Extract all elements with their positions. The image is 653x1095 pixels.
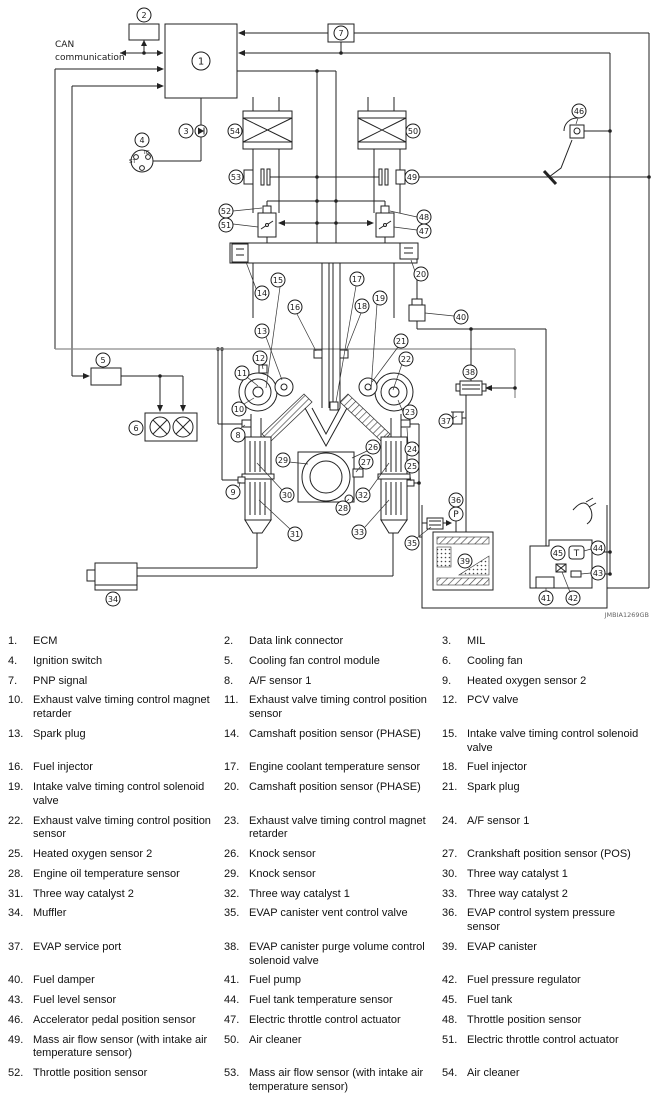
callout-47: 47	[417, 224, 431, 238]
legend-item-number: 3.	[442, 635, 467, 649]
legend-item-number: 2.	[224, 635, 249, 649]
svg-text:37: 37	[441, 417, 451, 426]
can-communication-label: CAN	[55, 40, 74, 50]
legend-item: 51. Electric throttle control actuator	[442, 1034, 649, 1062]
legend-item: 10. Exhaust valve timing control magnet …	[8, 694, 222, 722]
svg-text:36: 36	[451, 496, 461, 505]
svg-text:1: 1	[198, 57, 204, 68]
legend-item: 24. A/F sensor 1	[442, 815, 649, 843]
legend-item-number: 38.	[224, 941, 249, 955]
callout-23: 23	[403, 405, 417, 419]
heated-oxygen-sensor-right-icon	[407, 480, 414, 486]
svg-text:19: 19	[375, 294, 385, 303]
legend-item: 20. Camshaft position sensor (PHASE)	[224, 781, 440, 809]
legend-item-number: 27.	[442, 848, 467, 862]
callout-10: 10	[232, 402, 246, 416]
legend-item: 45. Fuel tank	[442, 994, 649, 1008]
legend-item-number: 14.	[224, 728, 249, 742]
legend-item: 14. Camshaft position sensor (PHASE)	[224, 728, 440, 756]
evap-purge-solenoid-icon	[456, 381, 486, 395]
svg-text:22: 22	[401, 355, 411, 364]
callout-12: 12	[253, 351, 267, 365]
fuel-pump-icon	[536, 577, 554, 588]
legend-item-number: 33.	[442, 888, 467, 902]
legend-item-label: Spark plug	[33, 728, 222, 742]
legend-item-label: Spark plug	[467, 781, 649, 795]
af-sensor-1-right-icon	[401, 420, 410, 427]
callout-32: 32	[356, 488, 370, 502]
legend-item-number: 1.	[8, 635, 33, 649]
legend-item: 4. Ignition switch	[8, 655, 222, 669]
callout-21: 21	[394, 334, 408, 348]
svg-text:26: 26	[368, 443, 378, 452]
svg-text:16: 16	[290, 303, 300, 312]
callout-37: 37	[439, 414, 453, 428]
svg-text:51: 51	[221, 221, 231, 230]
diagram-svg: IG ST	[0, 0, 653, 625]
fuel-damper-icon	[409, 299, 425, 321]
legend-item-number: 54.	[442, 1067, 467, 1081]
callout-16: 16	[288, 300, 302, 314]
legend-item: 41. Fuel pump	[224, 974, 440, 988]
svg-text:24: 24	[407, 445, 417, 454]
data-link-connector-box	[129, 24, 159, 40]
legend-item-number: 50.	[224, 1034, 249, 1048]
svg-text:18: 18	[357, 302, 367, 311]
svg-text:11: 11	[237, 369, 247, 378]
legend-item: 27. Crankshaft position sensor (POS)	[442, 848, 649, 862]
legend-item-number: 21.	[442, 781, 467, 795]
legend-item-label: PNP signal	[33, 675, 222, 689]
legend-item-number: 9.	[442, 675, 467, 689]
callout-17: 17	[350, 272, 364, 286]
svg-text:35: 35	[407, 539, 417, 548]
callout-54: 54	[228, 124, 242, 138]
legend-item: 12. PCV valve	[442, 694, 649, 722]
legend-item-label: Throttle position sensor	[33, 1067, 222, 1081]
legend-item-label: Cooling fan control module	[249, 655, 440, 669]
svg-text:53: 53	[231, 173, 241, 182]
legend-item-label: EVAP canister purge volume control solen…	[249, 941, 440, 969]
callout-44: 44	[591, 541, 605, 555]
svg-text:47: 47	[419, 227, 429, 236]
legend-item-label: Fuel tank temperature sensor	[249, 994, 440, 1008]
legend-item-label: ECM	[33, 635, 222, 649]
callout-2: 2	[137, 8, 151, 22]
legend-item-number: 24.	[442, 815, 467, 829]
callout-30: 30	[280, 488, 294, 502]
callout-40: 40	[454, 310, 468, 324]
legend-item-label: Exhaust valve timing control magnet reta…	[249, 815, 440, 843]
legend-item: 33. Three way catalyst 2	[442, 888, 649, 902]
legend-item-number: 12.	[442, 694, 467, 708]
legend-item-label: Three way catalyst 1	[467, 868, 649, 882]
legend-item-label: EVAP control system pressure sensor	[467, 907, 649, 935]
evap-vent-control-valve-icon	[427, 518, 443, 529]
legend-item-number: 46.	[8, 1014, 33, 1028]
legend-item-label: Exhaust valve timing control magnet reta…	[33, 694, 222, 722]
callout-14: 14	[255, 286, 269, 300]
legend-item: 48. Throttle position sensor	[442, 1014, 649, 1028]
legend-item-label: Intake valve timing control solenoid val…	[33, 781, 222, 809]
legend-item: 43. Fuel level sensor	[8, 994, 222, 1008]
legend-item-number: 40.	[8, 974, 33, 988]
callout-24: 24	[405, 442, 419, 456]
callout-3: 3	[179, 124, 193, 138]
svg-text:8: 8	[235, 431, 240, 440]
svg-text:43: 43	[593, 569, 603, 578]
legend-item-label: Heated oxygen sensor 2	[33, 848, 222, 862]
legend-item: 11. Exhaust valve timing control positio…	[224, 694, 440, 722]
svg-text:40: 40	[456, 313, 466, 322]
legend-item: 37. EVAP service port	[8, 941, 222, 969]
legend-item-label: Intake valve timing control solenoid val…	[467, 728, 649, 756]
svg-text:21: 21	[396, 337, 406, 346]
legend-item-label: Fuel injector	[467, 761, 649, 775]
legend-item-label: Electric throttle control actuator	[249, 1014, 440, 1028]
muffler-icon	[87, 563, 137, 590]
coolant-temp-sensor-icon	[330, 402, 338, 410]
legend-item-number: 13.	[8, 728, 33, 742]
legend-item: 31. Three way catalyst 2	[8, 888, 222, 902]
legend-item-number: 15.	[442, 728, 467, 742]
legend-item-label: Three way catalyst 2	[33, 888, 222, 902]
legend-item-number: 29.	[224, 868, 249, 882]
camshaft-position-sensor-left-connector	[232, 244, 248, 262]
legend-item-number: 16.	[8, 761, 33, 775]
legend-item-number: 25.	[8, 848, 33, 862]
legend-item: 52. Throttle position sensor	[8, 1067, 222, 1095]
legend-item: 23. Exhaust valve timing control magnet …	[224, 815, 440, 843]
fuel-injector-left-icon	[314, 350, 322, 358]
callout-51: 51	[219, 218, 233, 232]
svg-text:41: 41	[541, 594, 551, 603]
callout-52: 52	[219, 204, 233, 218]
legend-item-label: EVAP canister vent control valve	[249, 907, 440, 921]
legend-item-number: 23.	[224, 815, 249, 829]
svg-text:25: 25	[407, 462, 417, 471]
legend-item-label: A/F sensor 1	[467, 815, 649, 829]
legend-item-label: Heated oxygen sensor 2	[467, 675, 649, 689]
wiring-lines	[55, 30, 651, 608]
legend-item: 30. Three way catalyst 1	[442, 868, 649, 882]
legend-item-label: Fuel damper	[33, 974, 222, 988]
legend-item: 15. Intake valve timing control solenoid…	[442, 728, 649, 756]
legend-item-number: 44.	[224, 994, 249, 1008]
svg-text:33: 33	[354, 528, 364, 537]
legend-item-label: Exhaust valve timing control position se…	[249, 694, 440, 722]
callout-38: 38	[463, 365, 477, 379]
svg-text:50: 50	[408, 127, 418, 136]
legend-item-number: 32.	[224, 888, 249, 902]
svg-text:54: 54	[230, 127, 240, 136]
accelerator-pedal-icon	[544, 118, 584, 184]
legend-item: 3. MIL	[442, 635, 649, 649]
callout-6: 6	[129, 421, 143, 435]
callout-15: 15	[271, 273, 285, 287]
legend-item-number: 45.	[442, 994, 467, 1008]
legend-item-number: 6.	[442, 655, 467, 669]
legend-item-number: 42.	[442, 974, 467, 988]
svg-text:28: 28	[338, 504, 348, 513]
mass-air-flow-sensor-left	[244, 169, 270, 185]
legend-item-number: 47.	[224, 1014, 249, 1028]
legend-item: 22. Exhaust valve timing control positio…	[8, 815, 222, 843]
svg-text:T: T	[573, 549, 580, 559]
legend-item-label: EVAP canister	[467, 941, 649, 955]
legend-item-label: A/F sensor 1	[249, 675, 440, 689]
legend-item: 54. Air cleaner	[442, 1067, 649, 1095]
callout-27: 27	[359, 455, 373, 469]
callout-22: 22	[399, 352, 413, 366]
watermark: JMBIA1269GB	[604, 611, 649, 619]
callout-36: 36	[449, 493, 463, 507]
legend-item-number: 7.	[8, 675, 33, 689]
air-cleaner-right	[358, 97, 406, 213]
legend-item: 5. Cooling fan control module	[224, 655, 440, 669]
svg-text:5: 5	[100, 356, 105, 365]
legend-item: 17. Engine coolant temperature sensor	[224, 761, 440, 775]
svg-text:6: 6	[133, 424, 138, 433]
callout-26: 26	[366, 440, 380, 454]
svg-text:42: 42	[568, 594, 578, 603]
svg-text:46: 46	[574, 107, 584, 116]
callout-29: 29	[276, 453, 290, 467]
legend-item-label: Crankshaft position sensor (POS)	[467, 848, 649, 862]
legend-item: 50. Air cleaner	[224, 1034, 440, 1062]
svg-text:P: P	[453, 510, 459, 520]
svg-text:ST: ST	[129, 159, 136, 165]
callout-25: 25	[405, 459, 419, 473]
callout-50: 50	[406, 124, 420, 138]
callout-53: 53	[229, 170, 243, 184]
legend-item-label: Muffler	[33, 907, 222, 921]
legend-item: 25. Heated oxygen sensor 2	[8, 848, 222, 862]
svg-text:29: 29	[278, 456, 288, 465]
legend-item-label: Camshaft position sensor (PHASE)	[249, 781, 440, 795]
legend-item-number: 28.	[8, 868, 33, 882]
legend-item-number: 39.	[442, 941, 467, 955]
callout-49: 49	[405, 170, 419, 184]
legend-item-label: Air cleaner	[249, 1034, 440, 1048]
svg-text:3: 3	[183, 127, 188, 136]
legend-item-label: Exhaust valve timing control position se…	[33, 815, 222, 843]
svg-text:17: 17	[352, 275, 362, 284]
legend-item: 8. A/F sensor 1	[224, 675, 440, 689]
svg-text:4: 4	[139, 136, 144, 145]
legend-item: 39. EVAP canister	[442, 941, 649, 969]
legend-item-number: 26.	[224, 848, 249, 862]
legend: 1. ECM 2. Data link connector 3. MIL 4. …	[0, 625, 653, 1095]
legend-item: 18. Fuel injector	[442, 761, 649, 775]
legend-item-number: 20.	[224, 781, 249, 795]
legend-item-label: Three way catalyst 1	[249, 888, 440, 902]
callout-1: 1	[192, 52, 210, 70]
svg-text:10: 10	[234, 405, 244, 414]
legend-item-number: 17.	[224, 761, 249, 775]
camshaft-position-sensor-right-connector	[400, 243, 418, 259]
legend-item-number: 19.	[8, 781, 33, 795]
callout-7: 7	[334, 26, 348, 40]
legend-item-label: Data link connector	[249, 635, 440, 649]
legend-item-number: 52.	[8, 1067, 33, 1081]
callout-28: 28	[336, 501, 350, 515]
callout-33: 33	[352, 525, 366, 539]
legend-item-label: Accelerator pedal position sensor	[33, 1014, 222, 1028]
legend-item-number: 31.	[8, 888, 33, 902]
legend-item: 35. EVAP canister vent control valve	[224, 907, 440, 935]
legend-item-label: Knock sensor	[249, 868, 440, 882]
svg-text:2: 2	[141, 11, 146, 20]
legend-item: 29. Knock sensor	[224, 868, 440, 882]
legend-item-number: 8.	[224, 675, 249, 689]
svg-text:15: 15	[273, 276, 283, 285]
legend-item: 40. Fuel damper	[8, 974, 222, 988]
three-way-catalyst-left	[238, 437, 274, 533]
legend-item-label: Knock sensor	[249, 848, 440, 862]
callout-9: 9	[226, 485, 240, 499]
svg-text:31: 31	[290, 530, 300, 539]
callout-19: 19	[373, 291, 387, 305]
crankshaft-position-sensor-icon	[353, 469, 363, 477]
legend-item-label: Fuel pump	[249, 974, 440, 988]
svg-text:7: 7	[338, 29, 343, 38]
callout-5: 5	[96, 353, 110, 367]
svg-text:48: 48	[419, 213, 429, 222]
svg-text:14: 14	[257, 289, 267, 298]
callout-8: 8	[231, 428, 245, 442]
legend-item-label: Mass air flow sensor (with intake air te…	[249, 1067, 440, 1095]
callout-34: 34	[106, 592, 120, 606]
legend-item-number: 22.	[8, 815, 33, 829]
mass-air-flow-sensor-right	[379, 169, 405, 185]
legend-item-number: 30.	[442, 868, 467, 882]
legend-item: 34. Muffler	[8, 907, 222, 935]
legend-item: 26. Knock sensor	[224, 848, 440, 862]
svg-text:27: 27	[361, 458, 371, 467]
legend-item: 9. Heated oxygen sensor 2	[442, 675, 649, 689]
legend-item-number: 10.	[8, 694, 33, 708]
ignition-switch-icon: IG ST	[129, 150, 153, 172]
legend-item-label: Electric throttle control actuator	[467, 1034, 649, 1048]
air-cleaner-left	[243, 97, 292, 213]
legend-item-label: Ignition switch	[33, 655, 222, 669]
legend-item-label: PCV valve	[467, 694, 649, 708]
legend-item-label: Three way catalyst 2	[467, 888, 649, 902]
fuel-level-sensor-icon	[571, 571, 581, 577]
legend-item: 36. EVAP control system pressure sensor	[442, 907, 649, 935]
legend-item-number: 41.	[224, 974, 249, 988]
legend-item-number: 49.	[8, 1034, 33, 1048]
callout-45: 45	[551, 546, 565, 560]
legend-item: 2. Data link connector	[224, 635, 440, 649]
svg-text:20: 20	[416, 270, 426, 279]
callout-42: 42	[566, 591, 580, 605]
legend-item-label: Engine coolant temperature sensor	[249, 761, 440, 775]
callout-43: 43	[591, 566, 605, 580]
legend-item: 46. Accelerator pedal position sensor	[8, 1014, 222, 1028]
legend-item-number: 48.	[442, 1014, 467, 1028]
svg-text:49: 49	[407, 173, 417, 182]
legend-item-label: Cooling fan	[467, 655, 649, 669]
svg-text:9: 9	[230, 488, 235, 497]
legend-item: 1. ECM	[8, 635, 222, 649]
legend-item: 6. Cooling fan	[442, 655, 649, 669]
electric-throttle-actuator-left	[258, 206, 276, 243]
legend-item: 38. EVAP canister purge volume control s…	[224, 941, 440, 969]
svg-text:44: 44	[593, 544, 603, 553]
legend-item: 53. Mass air flow sensor (with intake ai…	[224, 1067, 440, 1095]
legend-item: 21. Spark plug	[442, 781, 649, 809]
legend-item-label: Fuel injector	[33, 761, 222, 775]
callout-11: 11	[235, 366, 249, 380]
legend-item: 47. Electric throttle control actuator	[224, 1014, 440, 1028]
legend-item: 28. Engine oil temperature sensor	[8, 868, 222, 882]
legend-item: 16. Fuel injector	[8, 761, 222, 775]
legend-item-number: 34.	[8, 907, 33, 921]
cooling-fan-control-module-box	[91, 368, 121, 385]
svg-text:30: 30	[282, 491, 292, 500]
callout-20: 20	[414, 267, 428, 281]
legend-item-number: 35.	[224, 907, 249, 921]
legend-item: 32. Three way catalyst 1	[224, 888, 440, 902]
cooling-fan-icon	[145, 413, 197, 441]
legend-item: 19. Intake valve timing control solenoid…	[8, 781, 222, 809]
evap-pressure-sensor-icon: P	[449, 507, 463, 521]
legend-item: 7. PNP signal	[8, 675, 222, 689]
svg-text:12: 12	[255, 354, 265, 363]
legend-item-label: Fuel level sensor	[33, 994, 222, 1008]
engine-control-system-diagram: IG ST	[0, 0, 653, 625]
service-manual-page: { "diagram": { "can_label_line1": "CAN",…	[0, 0, 653, 1077]
mil-lamp-icon	[195, 125, 207, 137]
heated-oxygen-sensor-left-icon	[238, 477, 245, 483]
svg-text:52: 52	[221, 207, 231, 216]
legend-item-number: 4.	[8, 655, 33, 669]
legend-item-number: 53.	[224, 1067, 249, 1081]
fuel-tank-temp-sensor-icon: T	[569, 546, 584, 559]
legend-item: 13. Spark plug	[8, 728, 222, 756]
legend-item: 49. Mass air flow sensor (with intake ai…	[8, 1034, 222, 1062]
svg-text:23: 23	[405, 408, 415, 417]
legend-item-number: 18.	[442, 761, 467, 775]
legend-item-number: 37.	[8, 941, 33, 955]
callout-48: 48	[417, 210, 431, 224]
svg-text:39: 39	[460, 557, 470, 566]
legend-item-label: Fuel pressure regulator	[467, 974, 649, 988]
svg-text:communication: communication	[55, 53, 125, 63]
callout-46: 46	[572, 104, 586, 118]
legend-item-label: Fuel tank	[467, 994, 649, 1008]
svg-text:32: 32	[358, 491, 368, 500]
svg-text:IG: IG	[144, 150, 150, 156]
legend-item-number: 51.	[442, 1034, 467, 1048]
legend-item-label: Throttle position sensor	[467, 1014, 649, 1028]
legend-item-label: Camshaft position sensor (PHASE)	[249, 728, 440, 742]
legend-item-number: 36.	[442, 907, 467, 921]
callout-41: 41	[539, 591, 553, 605]
svg-text:45: 45	[553, 549, 563, 558]
legend-item-label: Air cleaner	[467, 1067, 649, 1081]
callout-35: 35	[405, 536, 419, 550]
legend-item-number: 5.	[224, 655, 249, 669]
legend-item-number: 11.	[224, 694, 249, 708]
legend-item-label: MIL	[467, 635, 649, 649]
fuel-pressure-regulator-icon	[556, 564, 566, 572]
legend-item: 42. Fuel pressure regulator	[442, 974, 649, 988]
svg-text:38: 38	[465, 368, 475, 377]
callout-39: 39	[458, 554, 472, 568]
